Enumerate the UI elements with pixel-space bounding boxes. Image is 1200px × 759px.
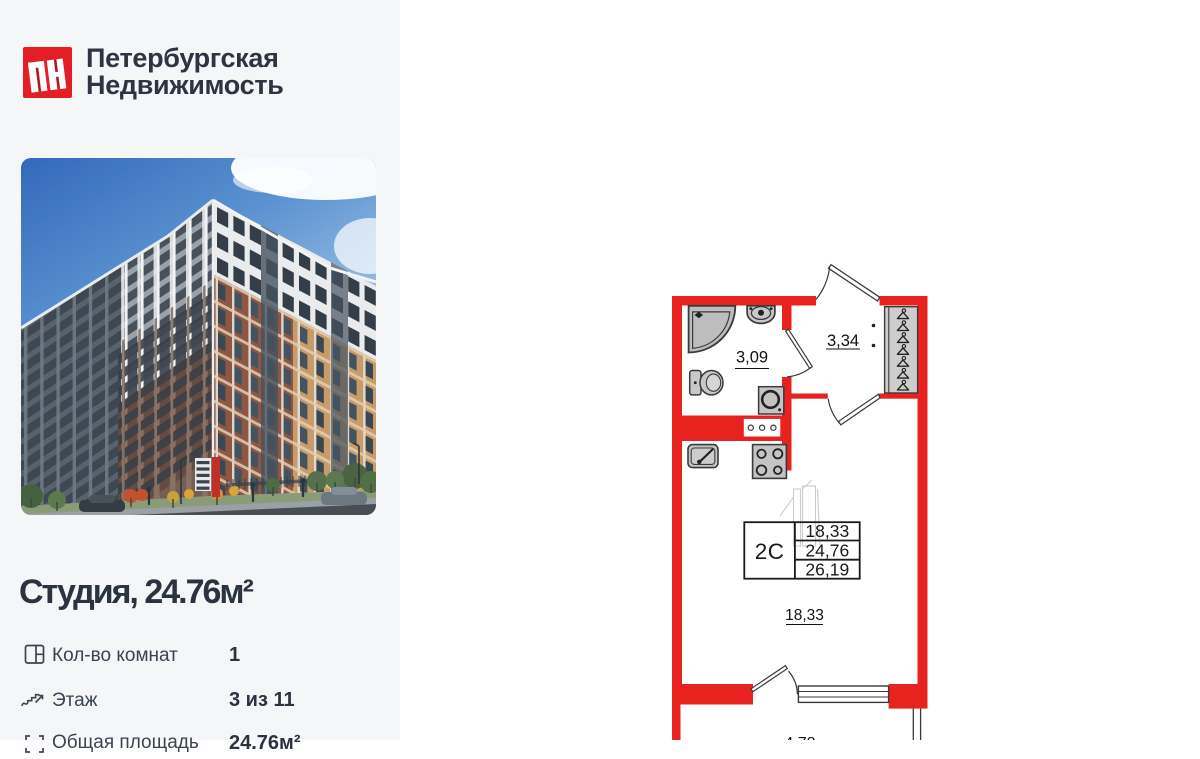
svg-text:26,19: 26,19 <box>805 560 849 580</box>
svg-text:2С: 2С <box>755 539 785 564</box>
svg-text:3,09: 3,09 <box>736 349 768 367</box>
svg-text:4,78: 4,78 <box>784 735 815 740</box>
svg-text:18,33: 18,33 <box>785 607 824 624</box>
svg-text:24,76: 24,76 <box>805 540 849 560</box>
svg-text:18,33: 18,33 <box>805 521 849 541</box>
svg-text:3,34: 3,34 <box>827 332 859 350</box>
